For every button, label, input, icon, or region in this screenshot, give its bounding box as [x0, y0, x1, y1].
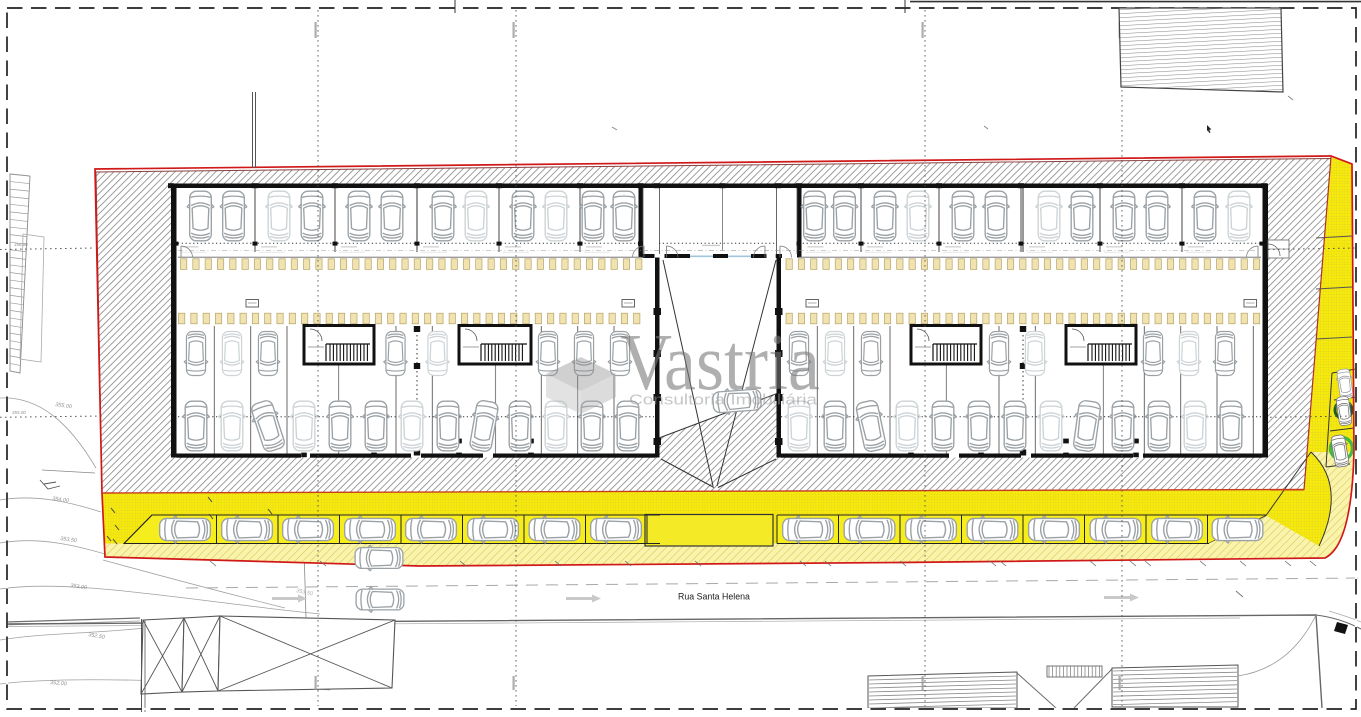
svg-text:355.00: 355.00: [12, 410, 26, 415]
svg-text:Rua Santa Helena: Rua Santa Helena: [678, 592, 750, 602]
svg-text:Consultoria Imobiliária: Consultoria Imobiliária: [629, 392, 818, 409]
svg-text:356.00: 356.00: [14, 242, 28, 247]
